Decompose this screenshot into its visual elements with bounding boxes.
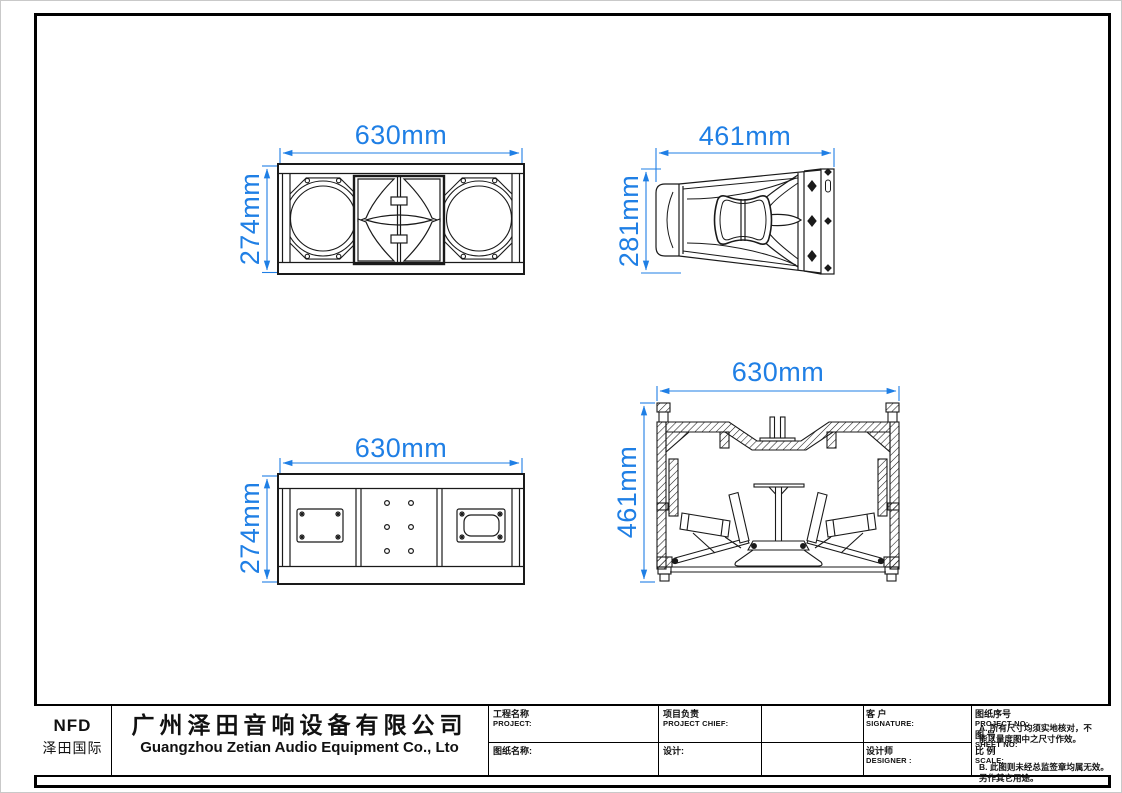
front-baffle-plate bbox=[808, 169, 834, 274]
center-horn-stand bbox=[735, 484, 822, 566]
dimension-label-front-height: 274mm bbox=[236, 149, 264, 289]
notes-block: A. 所有尺寸均须实地核对，不 能以量度图中之尺寸作效。 B. 此图则未经总监签… bbox=[979, 712, 1109, 793]
company-name-en: Guangzhou Zetian Audio Equipment Co., Lt… bbox=[111, 739, 488, 757]
field-project: 工程名称 PROJECT: bbox=[493, 709, 532, 728]
dimension-label-rear-height: 274mm bbox=[236, 458, 264, 598]
field-project-cn: 工程名称 bbox=[493, 709, 532, 719]
field-design-cn: 设计: bbox=[663, 746, 684, 756]
left-woofer-section bbox=[675, 493, 749, 564]
title-block: NFD 泽田国际 广州泽田音响设备有限公司 Guangzhou Zetian A… bbox=[34, 704, 1111, 777]
field-design: 设计: bbox=[663, 746, 684, 756]
field-drawing-name: 图纸名称: bbox=[493, 746, 532, 756]
field-chief-en: PROJECT CHIEF: bbox=[663, 719, 728, 728]
dimension-label-side-width: 461mm bbox=[675, 122, 815, 150]
right-connector-plate bbox=[457, 509, 505, 542]
left-connector-plate bbox=[297, 509, 343, 542]
section-view bbox=[657, 403, 899, 581]
front-view bbox=[278, 164, 524, 274]
center-horn bbox=[354, 176, 444, 264]
technical-drawing-canvas bbox=[1, 1, 1122, 793]
right-woofer-section bbox=[807, 493, 881, 564]
rear-view bbox=[278, 474, 524, 584]
field-signature-cn: 客 户 bbox=[866, 709, 914, 719]
title-block-divider bbox=[863, 706, 864, 775]
logo-block: NFD 泽田国际 bbox=[34, 716, 111, 758]
field-chief: 项目负责 PROJECT CHIEF: bbox=[663, 709, 728, 728]
dimension-label-side-height: 281mm bbox=[615, 151, 643, 291]
note-b: B. 此图则未经总监签章均属无效。 另作其它用途。 bbox=[979, 762, 1109, 784]
screw-holes bbox=[385, 501, 414, 554]
field-signature-en: SIGNATURE: bbox=[866, 719, 914, 728]
company-block: 广州泽田音响设备有限公司 Guangzhou Zetian Audio Equi… bbox=[111, 713, 488, 757]
dimension-label-section-width: 630mm bbox=[708, 358, 848, 386]
title-block-divider bbox=[658, 706, 659, 775]
title-block-row-divider bbox=[488, 742, 971, 743]
field-drawing-name-cn: 图纸名称: bbox=[493, 746, 532, 756]
dimension-label-section-height: 461mm bbox=[613, 422, 641, 562]
field-chief-cn: 项目负责 bbox=[663, 709, 728, 719]
field-signature: 客 户 SIGNATURE: bbox=[866, 709, 914, 728]
left-woofer bbox=[282, 178, 363, 259]
dimension-label-front-width: 630mm bbox=[331, 121, 471, 149]
field-designer-en: DESIGNER : bbox=[866, 756, 912, 765]
note-a: A. 所有尺寸均须实地核对，不 能以量度图中之尺寸作效。 bbox=[979, 723, 1109, 745]
logo-cn-text: 泽田国际 bbox=[34, 738, 111, 758]
rigging-plate bbox=[715, 196, 772, 244]
title-block-divider bbox=[488, 706, 489, 775]
right-woofer bbox=[438, 178, 519, 259]
drawing-sheet: 630mm 274mm 461mm 281mm 630mm 274mm 630m… bbox=[0, 0, 1122, 793]
logo-nfd-text: NFD bbox=[34, 716, 111, 736]
company-name-cn: 广州泽田音响设备有限公司 bbox=[111, 713, 488, 739]
side-view bbox=[656, 169, 834, 274]
title-block-divider bbox=[971, 706, 972, 775]
field-designer: 设计师 DESIGNER : bbox=[866, 746, 912, 765]
dimension-label-rear-width: 630mm bbox=[331, 434, 471, 462]
field-designer-cn: 设计师 bbox=[866, 746, 912, 756]
title-block-divider bbox=[761, 706, 762, 775]
field-project-en: PROJECT: bbox=[493, 719, 532, 728]
